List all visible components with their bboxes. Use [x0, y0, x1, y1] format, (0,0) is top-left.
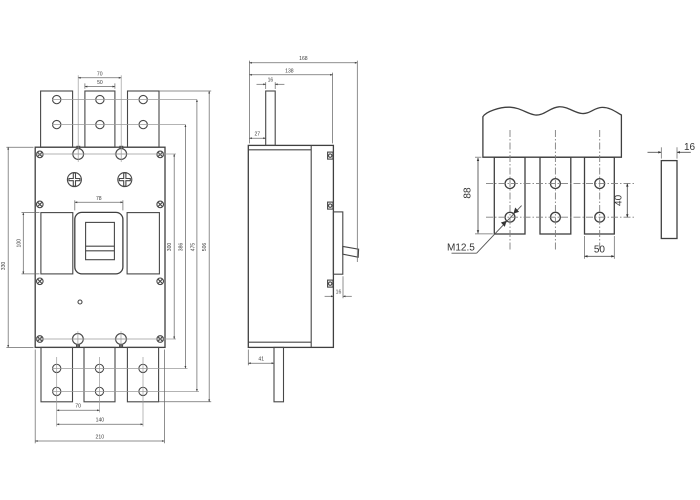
svg-text:70: 70 — [75, 404, 81, 410]
svg-text:506: 506 — [202, 243, 208, 252]
svg-text:40: 40 — [614, 194, 625, 206]
svg-text:41: 41 — [258, 357, 264, 363]
svg-text:330: 330 — [1, 262, 7, 271]
svg-text:138: 138 — [285, 68, 294, 74]
svg-text:50: 50 — [97, 80, 103, 86]
svg-text:386: 386 — [179, 243, 185, 252]
svg-text:100: 100 — [17, 239, 23, 248]
svg-text:50: 50 — [594, 245, 606, 256]
svg-text:168: 168 — [299, 56, 308, 62]
svg-text:475: 475 — [191, 243, 197, 252]
svg-text:16: 16 — [336, 290, 342, 296]
svg-text:78: 78 — [96, 196, 102, 202]
svg-text:88: 88 — [463, 187, 474, 199]
svg-text:300: 300 — [167, 243, 173, 252]
svg-text:16: 16 — [268, 77, 274, 83]
svg-text:M12.5: M12.5 — [447, 243, 475, 254]
svg-text:70: 70 — [97, 71, 103, 77]
svg-text:140: 140 — [96, 418, 105, 424]
svg-text:27: 27 — [254, 132, 260, 138]
svg-text:16: 16 — [684, 142, 696, 153]
svg-text:210: 210 — [96, 434, 105, 440]
